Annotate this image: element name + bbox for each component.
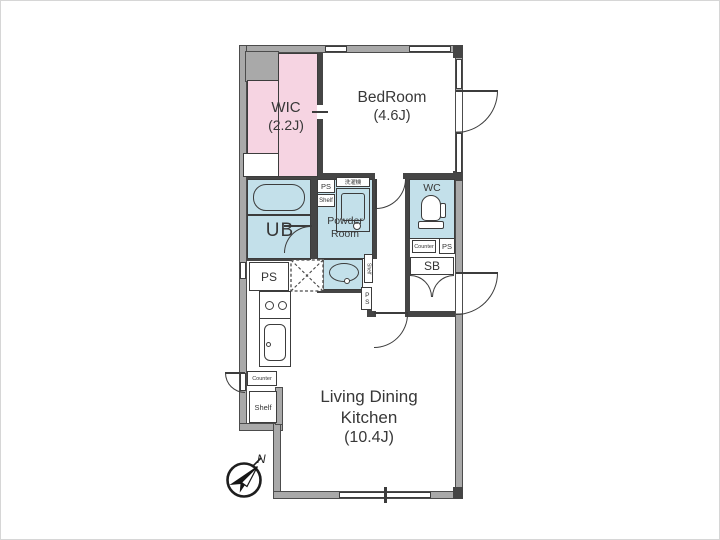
wic-size: (2.2J) — [251, 117, 321, 134]
wc-title: WC — [409, 182, 455, 195]
ub-title: UB — [251, 219, 309, 242]
ps-wc-text: PS — [442, 242, 452, 251]
shelf-box-top: Shelf — [317, 194, 335, 207]
toilet-bowl — [421, 195, 441, 221]
ps-box-vertical: PS — [361, 287, 372, 310]
north-label: N — [257, 452, 266, 466]
counter-kitchen-text: Counter — [252, 376, 272, 382]
kitchen-faucet-icon — [266, 342, 271, 347]
wc-name: WC — [409, 182, 455, 195]
powder-title: Powder Room — [318, 215, 372, 241]
entrance-door-arc — [456, 273, 498, 315]
wic-title: WIC (2.2J) — [251, 99, 321, 134]
wic-name: WIC — [251, 99, 321, 117]
wall-entry-ldk — [405, 311, 455, 317]
ps-box-wc: PS — [439, 238, 455, 254]
window-top-right — [409, 46, 451, 52]
washer-label: 洗濯機 — [336, 177, 370, 187]
toilet-tank — [440, 203, 446, 218]
bedroom-door-arc — [376, 179, 406, 209]
powder-name-line2: Room — [318, 228, 372, 241]
sb-text: SB — [424, 259, 440, 273]
ldk-name-line1: Living Dining — [279, 387, 459, 408]
pillar-top-left — [245, 51, 279, 82]
toilet-base — [418, 221, 444, 229]
ldk-size: (10.4J) — [279, 428, 459, 448]
counter-box-wc: Counter — [412, 240, 436, 253]
wic-storage-box — [243, 153, 279, 177]
counter-wc-text: Counter — [414, 244, 434, 250]
window-top-left — [325, 46, 347, 52]
bedroom-size: (4.6J) — [331, 108, 453, 126]
ps-kitchen-text: PS — [261, 270, 277, 284]
floor-plan: 洗濯機 PS Shelf Counter PS SB PS — [0, 0, 720, 540]
balcony-door-arc — [456, 91, 498, 133]
window-bottom-mullion — [384, 487, 387, 503]
bedroom-name: BedRoom — [331, 89, 453, 108]
shelf-vertical-text: Shelf — [366, 263, 372, 274]
burner-left — [265, 301, 274, 310]
counter-box-kitchen: Counter — [247, 371, 277, 386]
ub-divider — [247, 214, 311, 216]
stove-icon — [259, 291, 291, 319]
powder-name-line1: Powder — [318, 215, 372, 228]
bathtub-icon — [253, 184, 305, 211]
wall-corner-top-right — [453, 45, 463, 58]
kitchen-window-arc — [225, 373, 245, 393]
shelf-top-text: Shelf — [319, 198, 333, 204]
shelf-box-bottom: Shelf — [249, 391, 277, 423]
compass-icon: N — [217, 450, 273, 506]
ps-top-text: PS — [321, 182, 331, 191]
ps-box-top: PS — [317, 179, 335, 193]
ps-vertical-text: PS — [363, 292, 370, 306]
shelf-box-vertical: Shelf — [364, 254, 373, 283]
window-right-mid — [456, 133, 462, 173]
sb-box: SB — [410, 257, 454, 275]
sb-door-arc-right — [432, 275, 454, 297]
refrigerator-space-icon — [290, 259, 324, 292]
shelf-bottom-text: Shelf — [254, 403, 271, 412]
wall-corner-bottom-right — [453, 487, 463, 499]
window-left-upper — [240, 262, 246, 279]
window-right-upper — [456, 59, 462, 89]
ldk-door-arc — [374, 314, 408, 348]
ldk-title: Living Dining Kitchen (10.4J) — [279, 387, 459, 448]
powder-sink-faucet-icon — [344, 278, 350, 284]
ps-box-kitchen: PS — [249, 262, 289, 291]
ub-name: UB — [251, 219, 309, 242]
washer-label-text: 洗濯機 — [345, 178, 362, 186]
bedroom-title: BedRoom (4.6J) — [331, 89, 453, 126]
burner-right — [278, 301, 287, 310]
ldk-name-line2: Kitchen — [279, 408, 459, 429]
sb-door-arc-left — [410, 275, 432, 297]
